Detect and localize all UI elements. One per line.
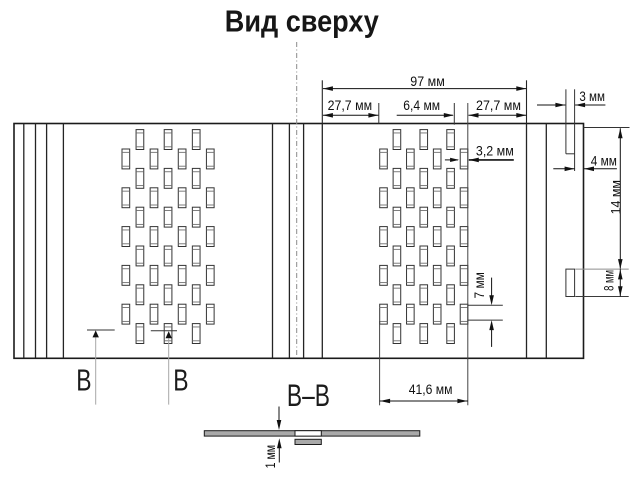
- svg-text:27,7 мм: 27,7 мм: [476, 98, 521, 113]
- svg-text:41,6 мм: 41,6 мм: [409, 382, 453, 397]
- svg-text:8 мм: 8 мм: [602, 270, 617, 291]
- svg-text:3,2 мм: 3,2 мм: [476, 144, 514, 159]
- svg-text:14 мм: 14 мм: [609, 180, 624, 214]
- svg-text:1 мм: 1 мм: [263, 445, 278, 469]
- svg-text:В–В: В–В: [287, 377, 330, 413]
- svg-text:В: В: [76, 364, 91, 398]
- svg-text:7 мм: 7 мм: [472, 272, 487, 298]
- svg-text:6,4 мм: 6,4 мм: [403, 98, 440, 113]
- svg-text:В: В: [173, 364, 188, 398]
- svg-text:27,7 мм: 27,7 мм: [328, 98, 373, 113]
- svg-text:97 мм: 97 мм: [410, 74, 445, 89]
- svg-text:3 мм: 3 мм: [579, 89, 605, 104]
- svg-text:Вид сверху: Вид сверху: [225, 5, 379, 38]
- svg-text:4 мм: 4 мм: [591, 153, 617, 168]
